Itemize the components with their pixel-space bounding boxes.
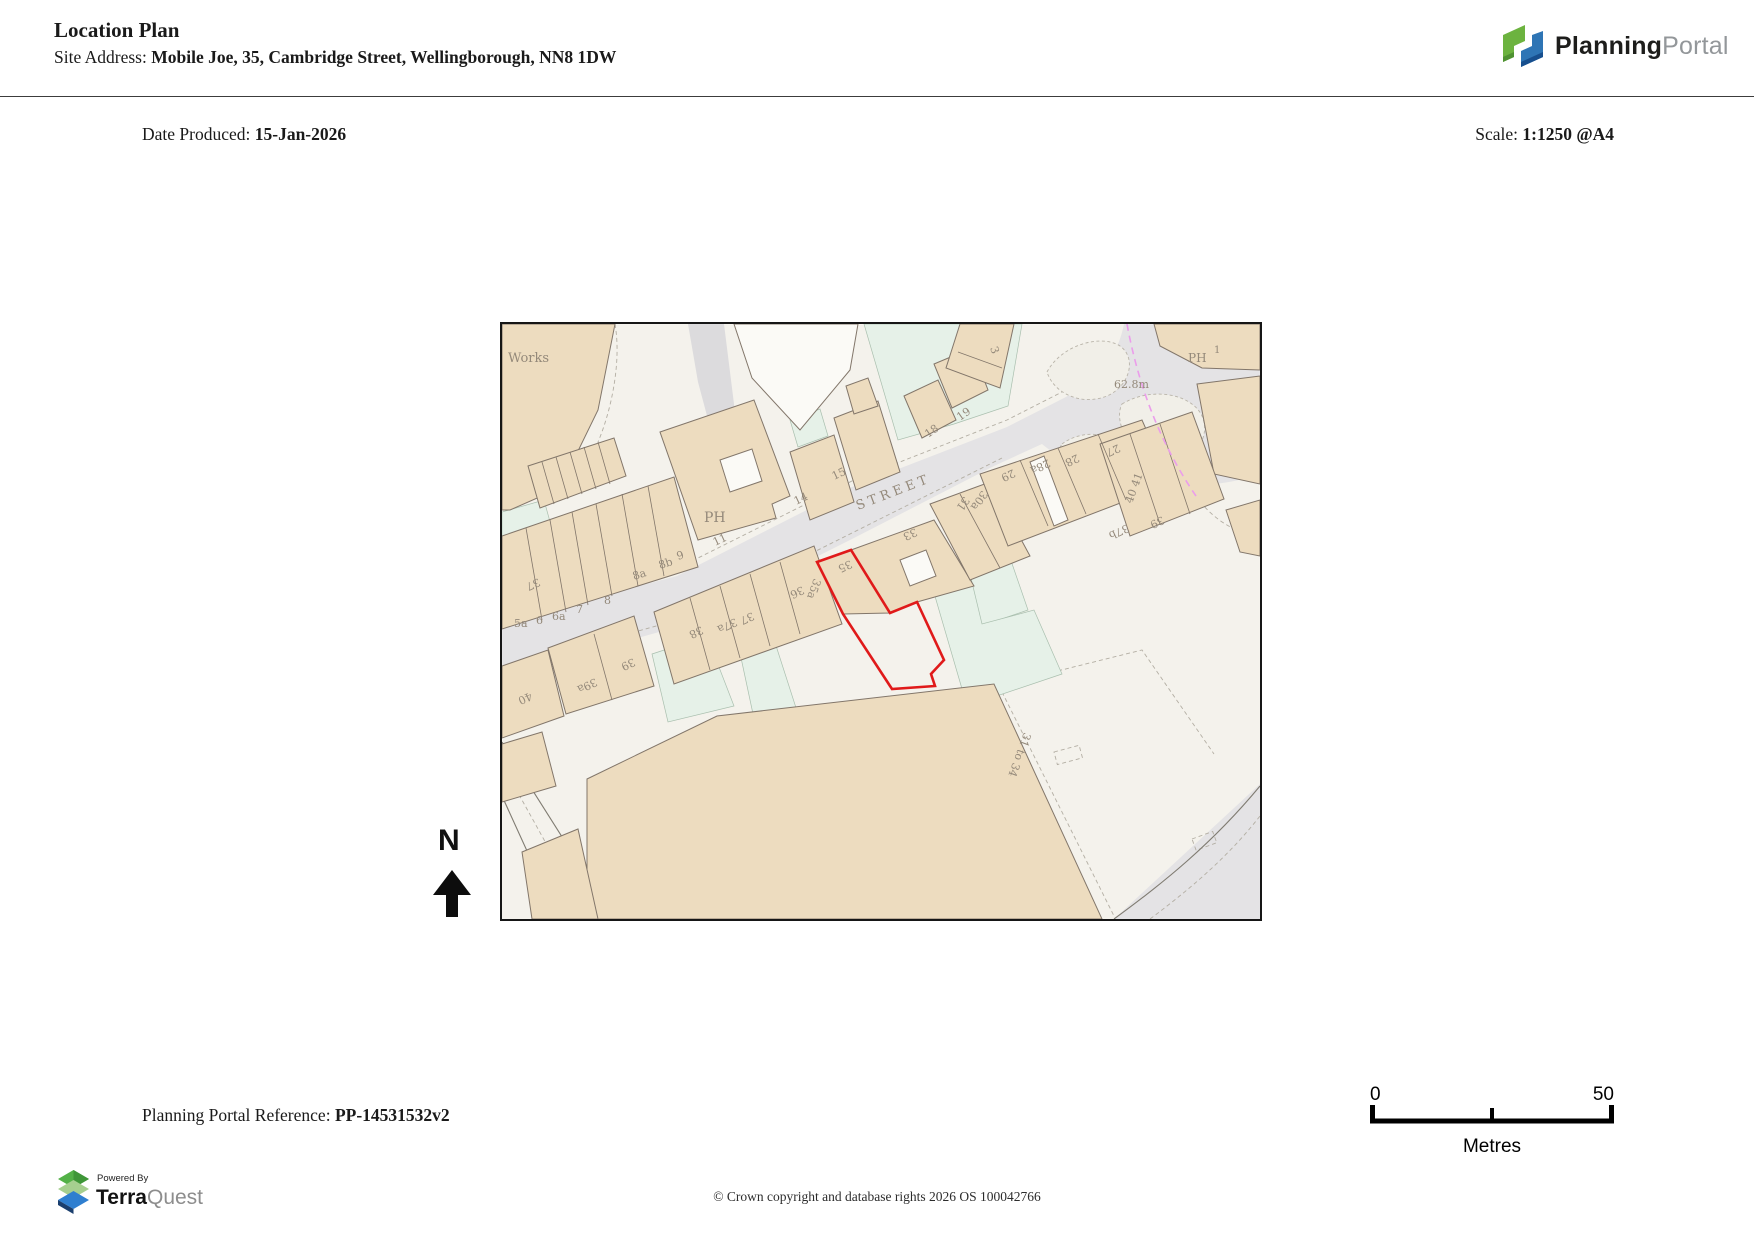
scalebar-rule: [1370, 1105, 1614, 1123]
scale-value: 1:1250 @A4: [1522, 124, 1614, 144]
map-label-6: 6: [536, 614, 543, 627]
map-canvas: WorksPH111415STREET1819362.8mPH1272828a2…: [502, 324, 1260, 919]
reference-value: PP-14531532v2: [335, 1105, 450, 1125]
map-label-works: Works: [508, 351, 549, 366]
map-label-8: 8: [604, 594, 611, 607]
location-map: WorksPH111415STREET1819362.8mPH1272828a2…: [500, 322, 1262, 921]
north-arrow-icon: [432, 870, 472, 917]
planning-portal-icon: [1500, 22, 1546, 70]
site-address-line: Site Address: Mobile Joe, 35, Cambridge …: [54, 47, 616, 68]
north-label: N: [438, 824, 460, 858]
scale-line: Scale: 1:1250 @A4: [1475, 124, 1614, 145]
planning-portal-logo: PlanningPortal: [1500, 22, 1729, 70]
map-label-5a: 5a: [514, 617, 528, 630]
page-title: Location Plan: [54, 18, 179, 43]
site-address-label: Site Address:: [54, 47, 151, 67]
header-divider: [0, 96, 1754, 97]
scalebar-start: 0: [1370, 1084, 1381, 1105]
date-value: 15-Jan-2026: [255, 124, 346, 144]
map-label-7: 7: [576, 603, 583, 616]
map-label-1: 1: [1214, 345, 1220, 356]
map-label-ph: PH: [704, 510, 726, 526]
scale-bar: 0 50 Metres: [1366, 1078, 1618, 1170]
scale-label: Scale:: [1475, 124, 1522, 144]
map-label-6a: 6a: [552, 610, 566, 623]
document-page: Location Plan Site Address: Mobile Joe, …: [0, 0, 1754, 1241]
reference-line: Planning Portal Reference: PP-14531532v2: [142, 1105, 450, 1126]
date-label: Date Produced:: [142, 124, 255, 144]
copyright-notice: © Crown copyright and database rights 20…: [0, 1189, 1754, 1205]
planning-portal-wordmark: PlanningPortal: [1555, 32, 1729, 61]
scalebar-unit: Metres: [1463, 1136, 1521, 1157]
powered-by-label: Powered By: [97, 1174, 203, 1184]
reference-label: Planning Portal Reference:: [142, 1105, 335, 1125]
scalebar-end: 50: [1593, 1084, 1614, 1105]
map-label-ph: PH: [1188, 351, 1207, 365]
map-label-62-8m: 62.8m: [1114, 378, 1149, 391]
date-produced-line: Date Produced: 15-Jan-2026: [142, 124, 346, 145]
site-address-value: Mobile Joe, 35, Cambridge Street, Wellin…: [151, 47, 616, 67]
